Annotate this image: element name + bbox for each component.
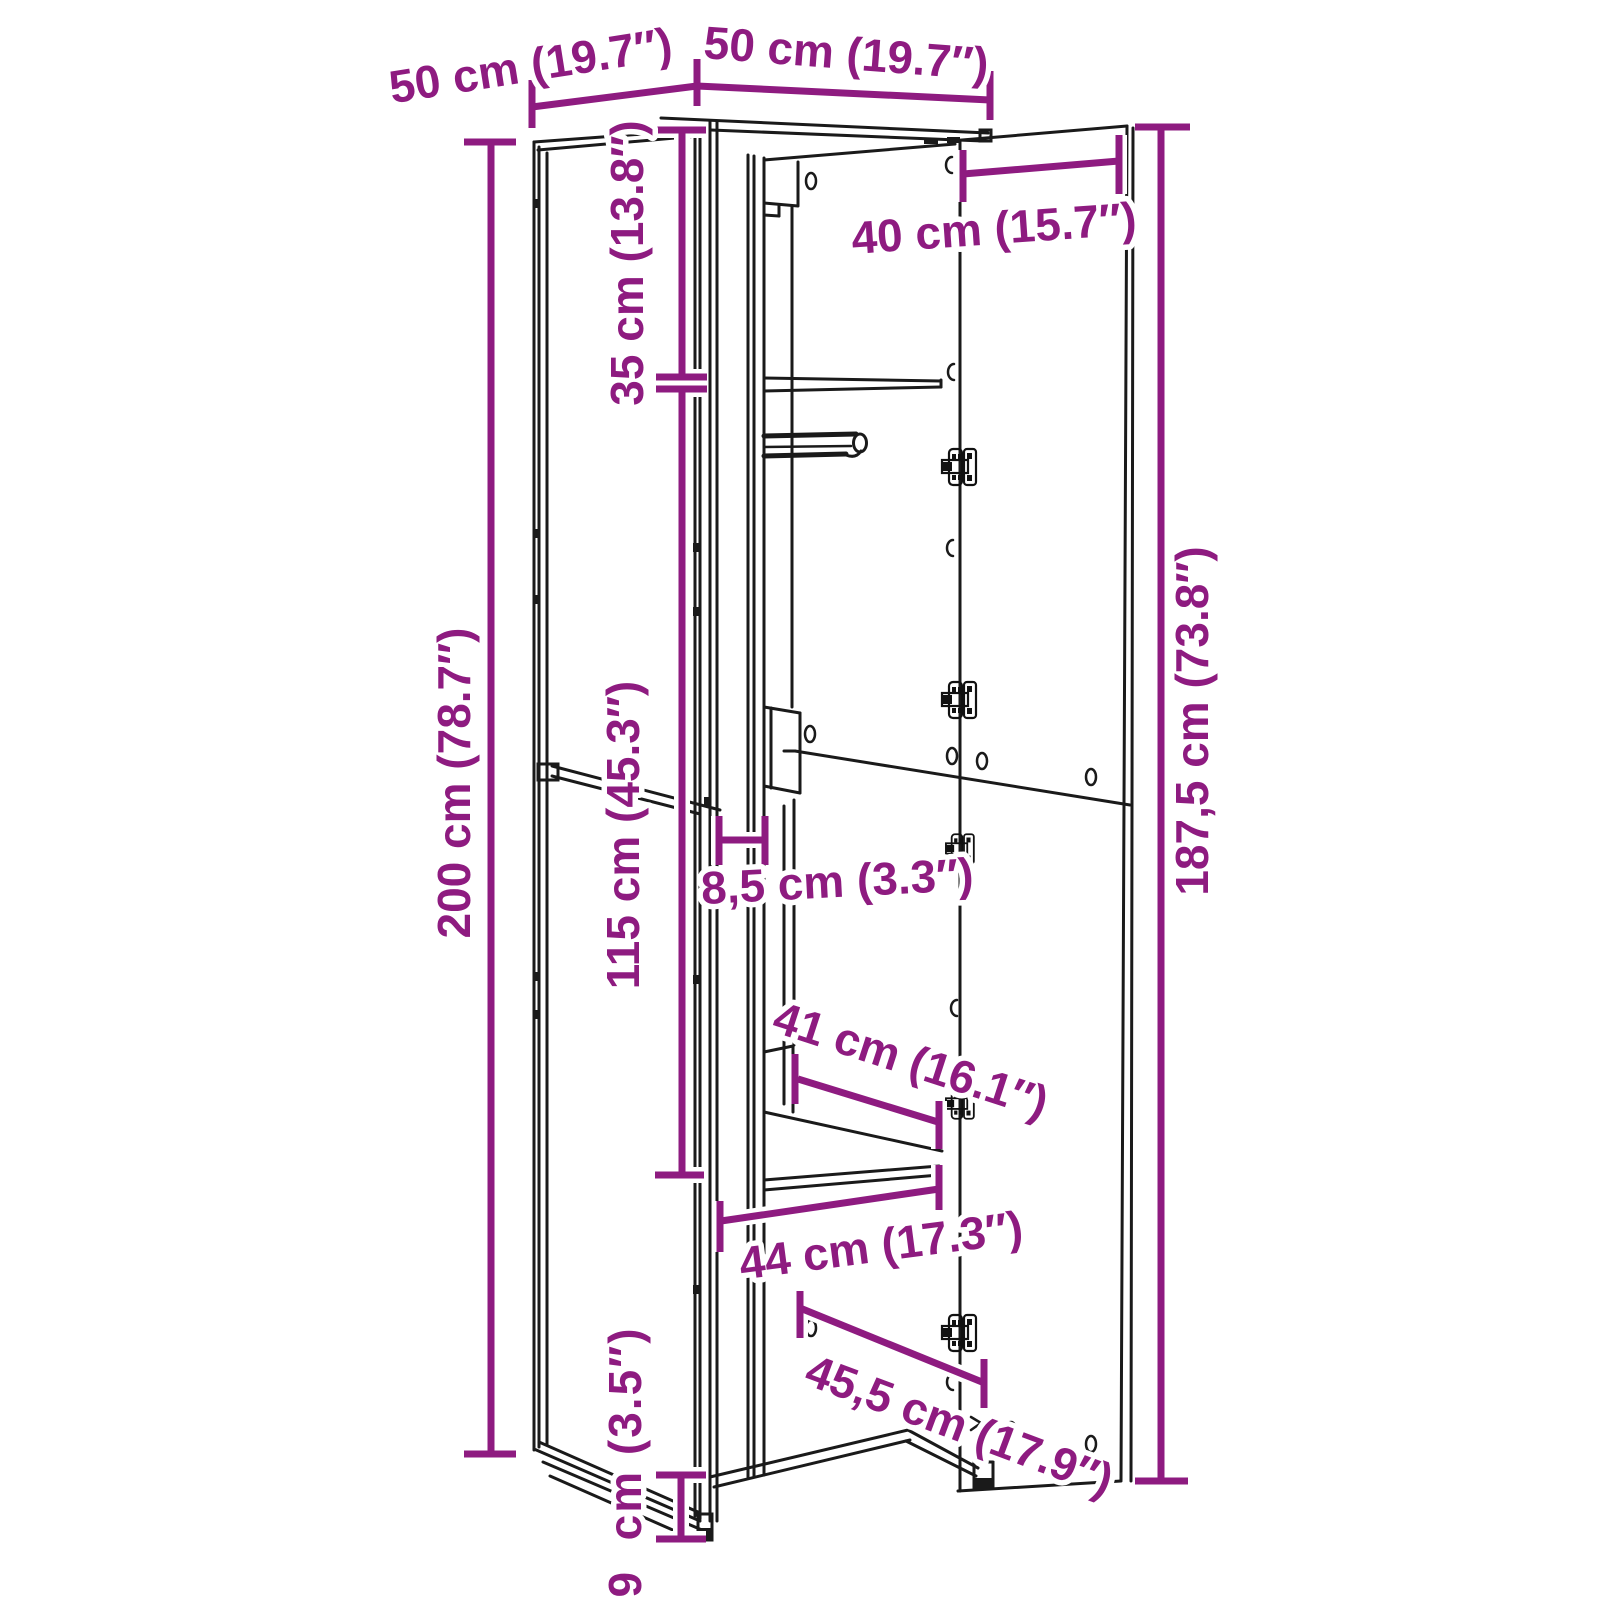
svg-text:8,5 cm (3.3″): 8,5 cm (3.3″)	[700, 848, 975, 914]
svg-text:187,5 cm (73.8″): 187,5 cm (73.8″)	[1166, 546, 1218, 895]
svg-text:200 cm (78.7″): 200 cm (78.7″)	[428, 628, 480, 939]
svg-text:115 cm (45.3″): 115 cm (45.3″)	[597, 681, 649, 989]
svg-text:40 cm (15.7″): 40 cm (15.7″)	[850, 192, 1138, 264]
svg-text:50 cm (19.7″): 50 cm (19.7″)	[702, 16, 991, 90]
svg-text:9 cm (3.5″): 9 cm (3.5″)	[599, 1326, 651, 1597]
svg-text:35 cm (13.8″): 35 cm (13.8″)	[601, 120, 653, 405]
